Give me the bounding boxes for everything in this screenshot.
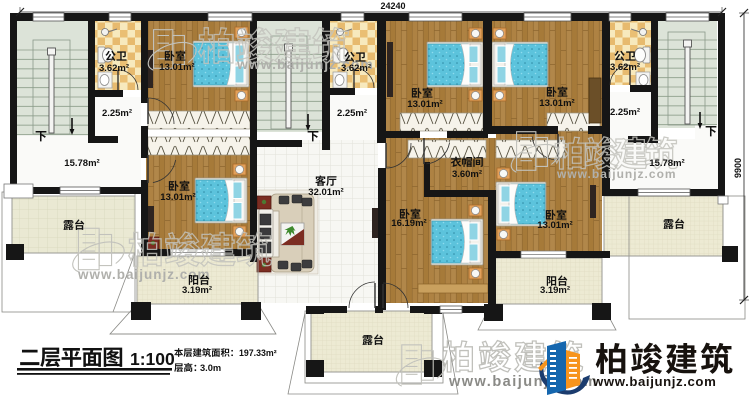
svg-text:13.01m²: 13.01m² <box>159 62 194 73</box>
svg-text:www.baijunjz.com: www.baijunjz.com <box>592 374 716 389</box>
svg-text:3.19m²: 3.19m² <box>540 285 570 296</box>
svg-text:3.62m²: 3.62m² <box>99 63 129 74</box>
svg-text:32.01m²: 32.01m² <box>308 187 343 198</box>
svg-text:3.19m²: 3.19m² <box>182 285 212 296</box>
svg-text:2.25m²: 2.25m² <box>610 107 640 118</box>
svg-text:15.78m²: 15.78m² <box>64 158 99 169</box>
svg-text:13.01m²: 13.01m² <box>537 220 572 231</box>
svg-text:3.60m²: 3.60m² <box>452 169 482 180</box>
svg-text:www.baijunjz.com: www.baijunjz.com <box>77 267 211 282</box>
svg-text:2.25m²: 2.25m² <box>337 108 367 119</box>
svg-text:13.01m²: 13.01m² <box>407 99 442 110</box>
svg-text:2.25m²: 2.25m² <box>102 108 132 119</box>
svg-text:3.0m: 3.0m <box>200 363 221 373</box>
svg-text:16.19m²: 16.19m² <box>391 218 426 229</box>
svg-text:3.62m²: 3.62m² <box>341 63 371 74</box>
svg-text:15.78m²: 15.78m² <box>649 158 684 169</box>
svg-text:13.01m²: 13.01m² <box>539 98 574 109</box>
svg-text:www.baijunjz.com: www.baijunjz.com <box>556 167 677 181</box>
svg-text:9900: 9900 <box>733 158 743 178</box>
svg-text:24240: 24240 <box>380 1 405 11</box>
svg-text:13.01m²: 13.01m² <box>160 192 195 203</box>
svg-text:1:100: 1:100 <box>130 349 175 369</box>
svg-text:197.33m²: 197.33m² <box>239 348 277 358</box>
svg-text:3.62m²: 3.62m² <box>610 62 640 73</box>
